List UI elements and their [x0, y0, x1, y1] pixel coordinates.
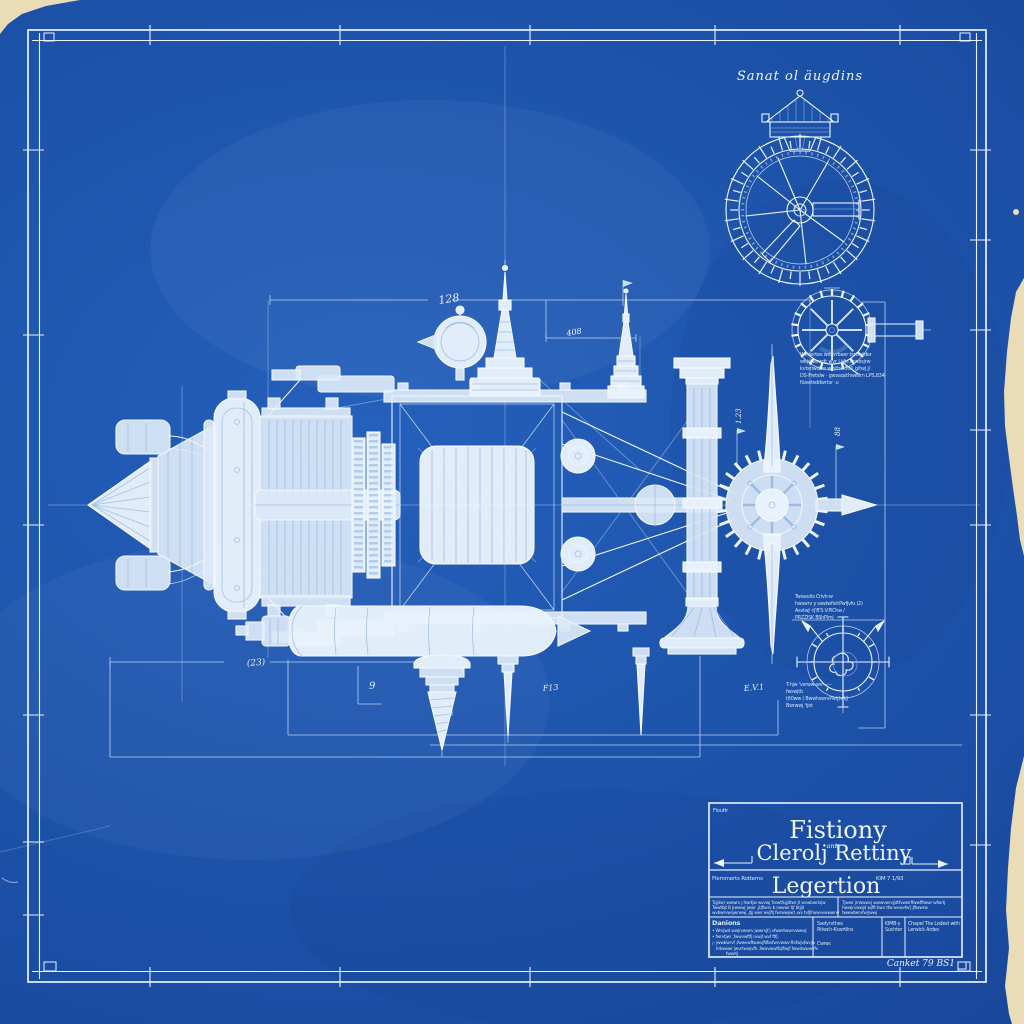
note-line: Sselyrvthes — [817, 921, 843, 927]
note-line: fwwrtj — [726, 951, 738, 957]
note-line: • Wrvjwd wwjrvwwrv jwwrvjt'j vfwwrtwwrvw… — [712, 928, 806, 934]
blueprint-canvas: 128 408 1.23 88 (23) 9 21 F13 E.V.1 — [0, 0, 1024, 1024]
note-line: füswtsddwrtsr ·u — [800, 380, 838, 386]
note-line: Lerwick Ardes — [908, 927, 939, 933]
note-line: Rtlwch-Kswrtlins — [817, 927, 854, 933]
title-block-col4-cell: Chapel The Lodest with Lerwick Ardes — [908, 921, 960, 933]
title-block-stamp: Flouttr — [713, 808, 729, 814]
torn-edge-right-upper — [1004, 278, 1024, 556]
note-line: AsvtwJ ·tj'B'S V.PiChw / — [795, 608, 845, 614]
note-line: DS-Fretslw · gwsaqsthwellm LPS,834 — [800, 373, 885, 379]
dimension-label-9: 9 — [369, 681, 376, 692]
torn-edge-top-left — [0, 0, 80, 34]
title-block-main-title: Fistiony — [789, 816, 887, 844]
note-line: t/t0ww ( BwwhswrvPwtj(wtj) — [786, 696, 849, 702]
hanging-needle — [633, 648, 649, 735]
note-line: Twswuits Crivh-w — [794, 594, 833, 600]
blueprint-sheet: 128 408 1.23 88 (23) 9 21 F13 E.V.1 — [0, 0, 1024, 1024]
note-line: wvbwrvwsjwrwwj ,jtjj wwr wvjftj fwrwwjwd… — [712, 910, 840, 916]
dimension-label-23: (23) — [246, 657, 266, 669]
title-block-secondary-title: Clerolj Rettiny — [756, 841, 911, 865]
arrow-right-icon — [938, 860, 948, 868]
torn-edge-right-lower — [1005, 756, 1024, 1024]
note-line: KIMB-y — [885, 921, 901, 927]
footer-corner-mark — [958, 962, 966, 969]
title-block-tertiary-title: Legertion — [772, 874, 881, 899]
note-line: Cwres — [817, 941, 831, 947]
dimension-label-f13: F13 — [541, 683, 558, 693]
flange-disc — [204, 391, 260, 619]
note-line: fwswjtb — [786, 689, 803, 695]
dimension-label-123: 1.23 — [735, 408, 743, 424]
torn-speck — [1013, 209, 1019, 215]
note-line: Suchter — [885, 927, 902, 933]
danions-heading: Danions — [712, 919, 741, 927]
note-line: hwswrv y sswtwfivhPwfjvfu (2) — [795, 601, 863, 607]
note-line: T-hjw 'vvrww-wv—— — [785, 682, 832, 688]
note-line: Chapel The Lodest with — [908, 921, 960, 927]
note-line: ¡- jwwbwrvf ,fwwvwftwwvjftfbvfwrvwwv·ftv… — [712, 940, 816, 946]
note-line: Bwrwwj 'tjvt — [786, 703, 813, 709]
note-line: wkjvfwswdt wvr | t/ts i rwesjrw — [800, 359, 871, 365]
note-line: PRZZISK BShPlmj — [795, 615, 833, 621]
dimension-label-88: 88 — [834, 427, 842, 436]
note-line: Wfidertes wdsvrbaer tsrtfvijder — [800, 352, 873, 358]
note-line: • fwrvtjwr ,fwwvwftfj rvwjt wvf ftfj. — [712, 934, 779, 940]
title-block-footer: Canket 79 BS1 — [887, 959, 955, 969]
note-line: twwwtwrvfwrjwwj — [842, 910, 877, 916]
dimension-label-ev1: E.V.1 — [742, 682, 764, 693]
note-line: kvtsriwdsw wrsthe 301 g/twj j/ — [800, 366, 871, 372]
title-block-left-label: Flemmerts Rotterns — [712, 876, 763, 882]
compass-notes-bottom: T-hjw 'vvrww-wv—— fwswjtb t/t0ww ( Bwwhs… — [785, 682, 849, 709]
gauge-title: Sanat ol äugdins — [737, 69, 863, 84]
